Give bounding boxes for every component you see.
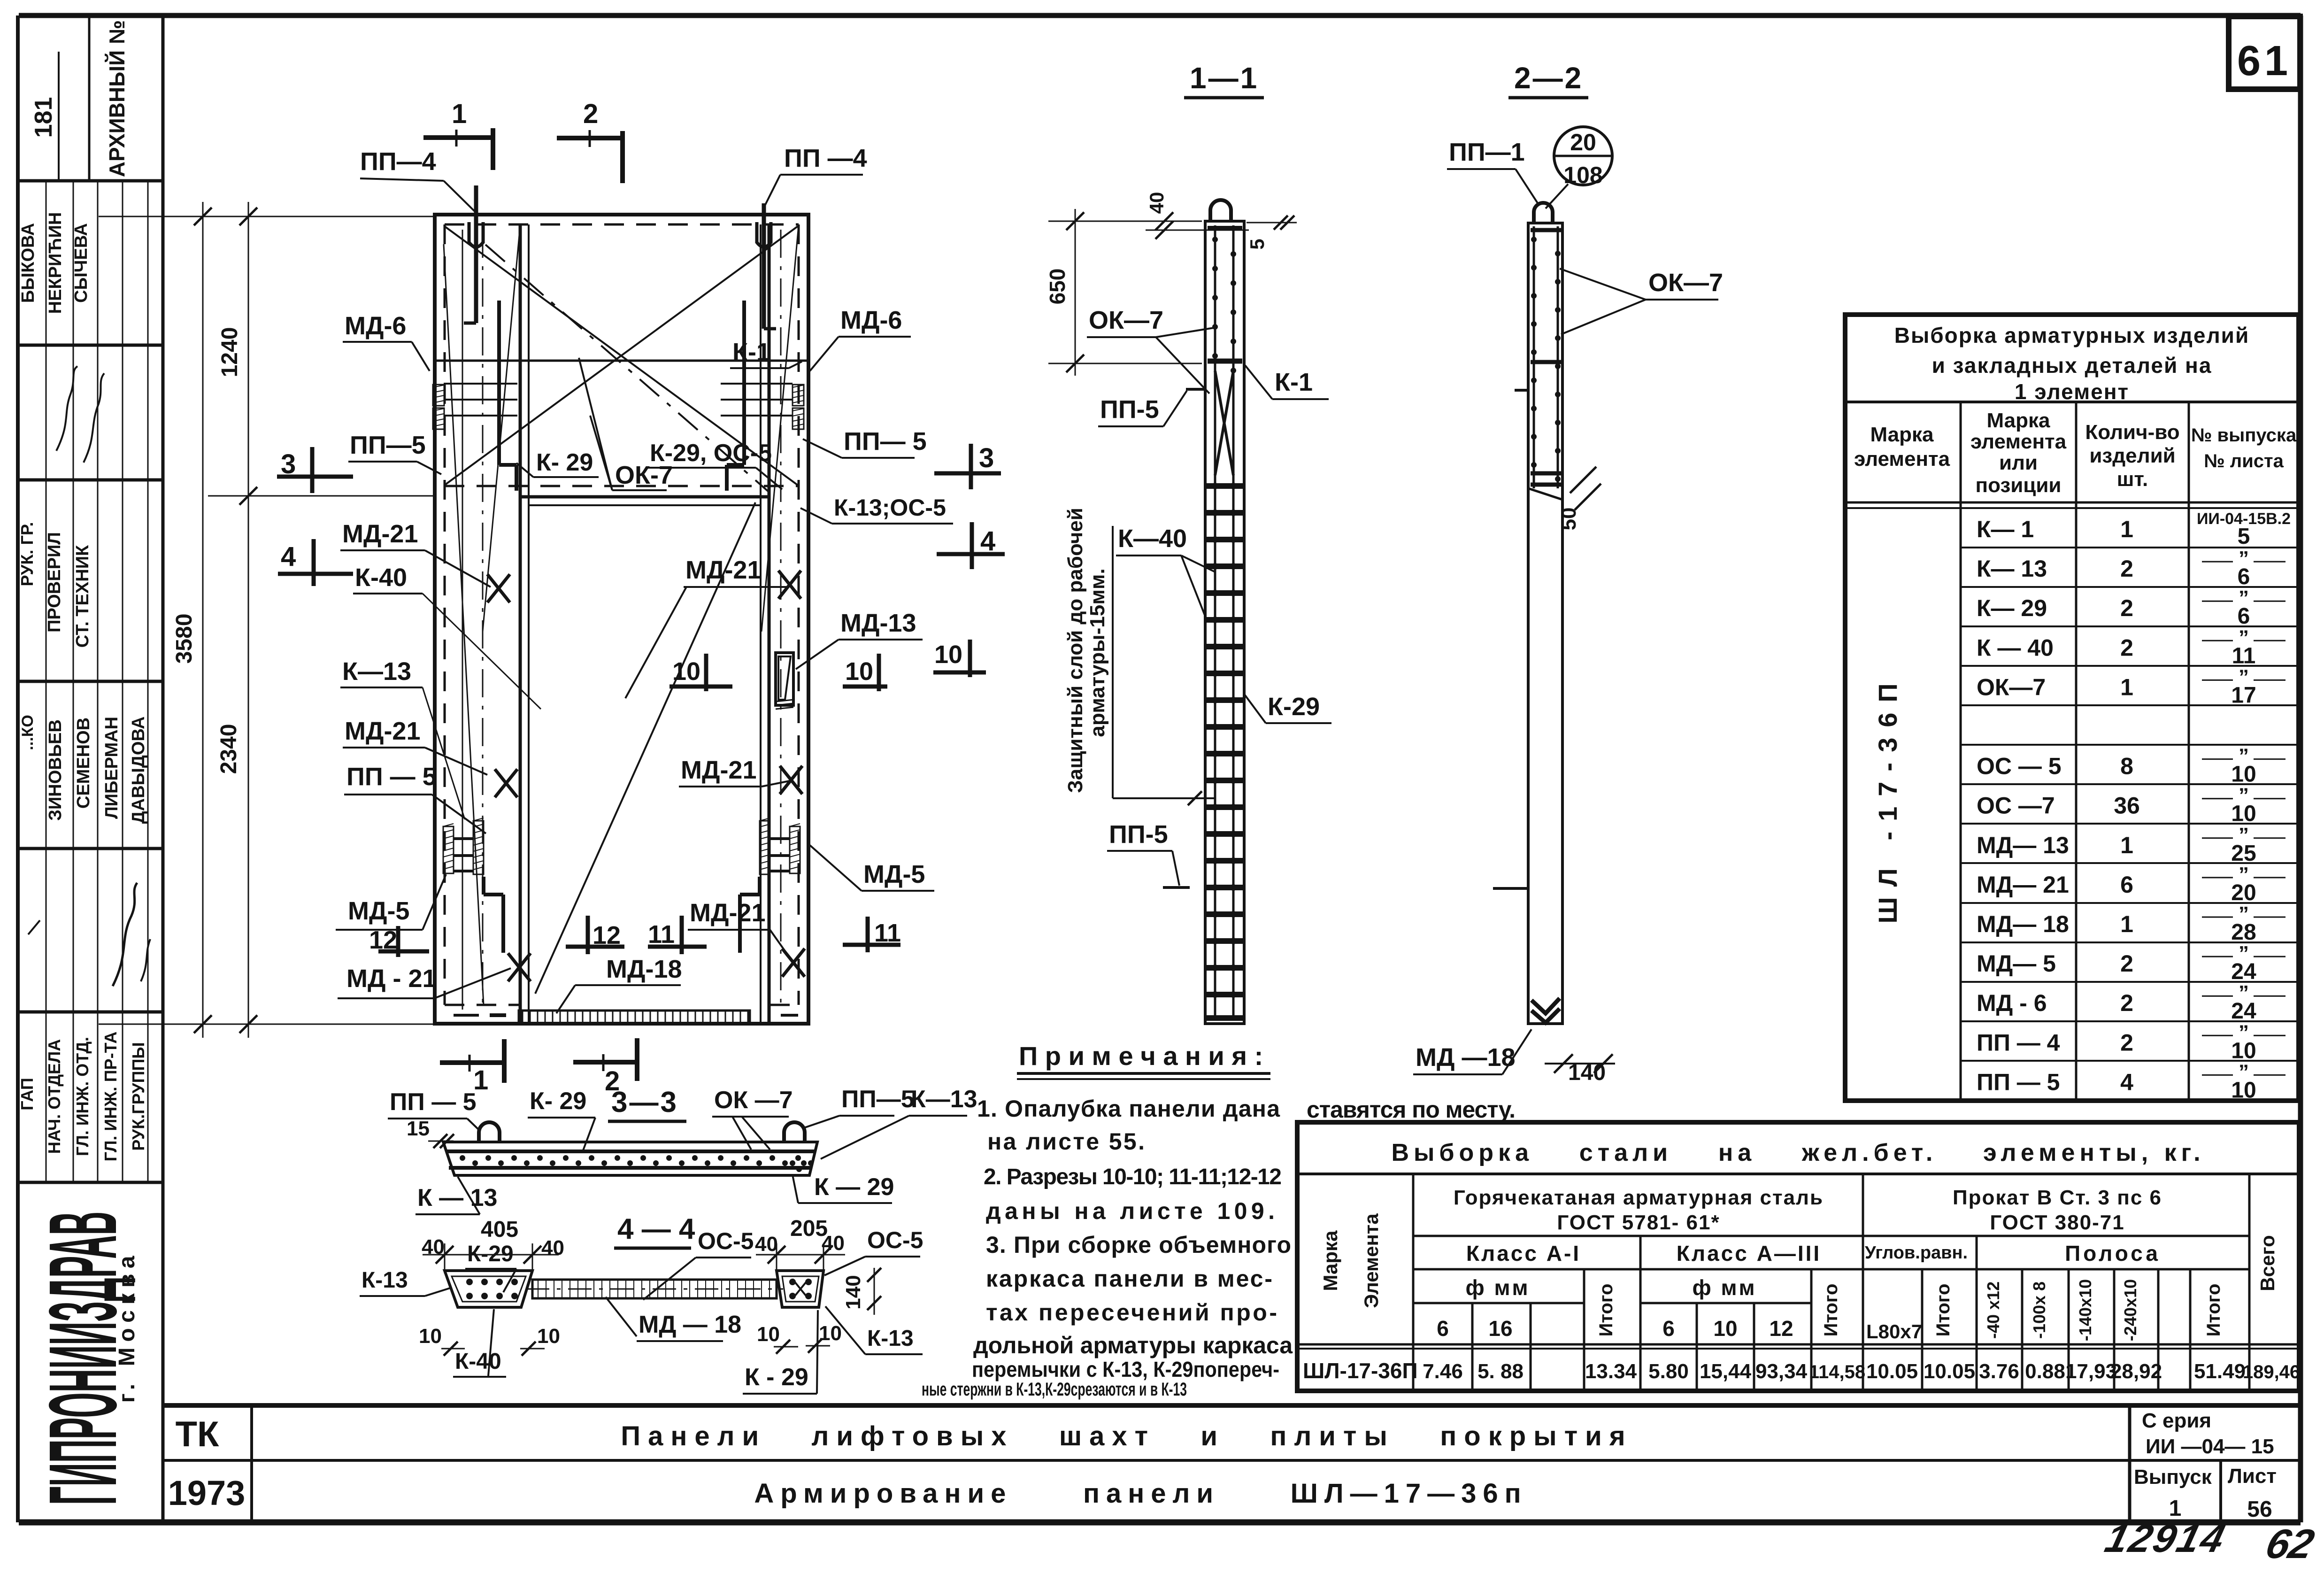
- svg-text:ОК—7: ОК—7: [1977, 674, 2046, 700]
- svg-text:15: 15: [407, 1117, 430, 1140]
- svg-text:1 элемент: 1 элемент: [2015, 379, 2129, 404]
- svg-text:0.88: 0.88: [2025, 1360, 2065, 1383]
- svg-text:МД— 5: МД— 5: [1977, 950, 2056, 977]
- svg-text:МД-21: МД-21: [681, 756, 757, 784]
- svg-text:3. При сборке объемного: 3. При сборке объемного: [986, 1232, 1291, 1258]
- svg-text:4 — 4: 4 — 4: [617, 1213, 695, 1245]
- svg-text:ПП-5: ПП-5: [1100, 395, 1159, 424]
- svg-text:ПП-5: ПП-5: [1109, 820, 1168, 849]
- svg-text:8: 8: [2120, 753, 2133, 779]
- svg-text:СЫЧЕВА: СЫЧЕВА: [71, 223, 91, 303]
- svg-text:МД-6: МД-6: [345, 312, 406, 340]
- svg-text:2340: 2340: [216, 724, 241, 774]
- svg-text:114,58: 114,58: [1809, 1362, 1865, 1382]
- svg-text:К-13: К-13: [362, 1268, 408, 1293]
- svg-text:5: 5: [2238, 524, 2250, 549]
- svg-text:тах пересечений про-: тах пересечений про-: [986, 1299, 1277, 1326]
- svg-text:ГОСТ 380-71: ГОСТ 380-71: [1990, 1211, 2124, 1234]
- svg-text:МД-21: МД-21: [690, 899, 766, 927]
- svg-text:и закладных деталей на: и закладных деталей на: [1932, 353, 2212, 378]
- svg-text:17,93: 17,93: [2065, 1360, 2117, 1383]
- svg-text:МД-13: МД-13: [840, 609, 916, 637]
- svg-text:10: 10: [2231, 762, 2256, 787]
- svg-text:Прокат В Ст. 3 пс 6: Прокат В Ст. 3 пс 6: [1953, 1186, 2162, 1209]
- svg-text:ЛИБЕРМАН: ЛИБЕРМАН: [102, 717, 122, 819]
- svg-text:-40 x12: -40 x12: [1984, 1281, 2003, 1339]
- svg-text:6: 6: [1662, 1316, 1675, 1341]
- svg-text:2: 2: [2120, 1029, 2133, 1056]
- svg-text:К—13: К—13: [342, 657, 411, 686]
- svg-text:СТ. ТЕХНИК: СТ. ТЕХНИК: [73, 545, 92, 648]
- svg-text:ные стержни в К-13,К-29срезают: ные стержни в К-13,К-29срезаются и в К-1…: [922, 1379, 1187, 1400]
- svg-text:5. 88: 5. 88: [1478, 1360, 1524, 1383]
- svg-text:Выборка стали на жел.: Выборка стали на жел.бет. элементы, кг.: [1391, 1139, 2205, 1166]
- svg-text:-240x10: -240x10: [2121, 1279, 2140, 1341]
- svg-text:ф мм: ф мм: [1465, 1275, 1530, 1300]
- svg-text:ф мм: ф мм: [1692, 1275, 1756, 1300]
- svg-text:1—1: 1—1: [1190, 61, 1259, 95]
- svg-text:2: 2: [2120, 556, 2133, 582]
- svg-text:108: 108: [1563, 162, 1602, 188]
- svg-text:дольной арматуры каркаса: дольной арматуры каркаса: [973, 1332, 1293, 1358]
- svg-text:МД-18: МД-18: [606, 955, 682, 983]
- svg-text:Итого: Итого: [1821, 1284, 1841, 1337]
- svg-text:ПП—5: ПП—5: [841, 1086, 915, 1113]
- svg-text:МД — 18: МД — 18: [639, 1311, 741, 1338]
- svg-text:10: 10: [2231, 1038, 2256, 1063]
- svg-text:МД— 18: МД— 18: [1977, 911, 2069, 937]
- svg-text:г. Москва: г. Москва: [115, 1250, 139, 1403]
- svg-text:ЗИНОВЬЕВ: ЗИНОВЬЕВ: [46, 719, 65, 821]
- svg-text:5.80: 5.80: [1648, 1360, 1689, 1383]
- svg-text:6: 6: [2120, 872, 2133, 898]
- svg-text:Итого: Итого: [2203, 1284, 2224, 1337]
- svg-text:Марка: Марка: [1870, 423, 1934, 446]
- svg-text:15,44: 15,44: [1700, 1360, 1752, 1383]
- svg-text:МД— 13: МД— 13: [1977, 832, 2069, 858]
- svg-text:1: 1: [2120, 911, 2133, 937]
- svg-text:L80x7: L80x7: [1866, 1320, 1922, 1343]
- svg-text:25: 25: [2231, 841, 2256, 866]
- svg-text:РУК. ГР.: РУК. ГР.: [17, 522, 37, 586]
- svg-text:ОК—7: ОК—7: [1648, 269, 1723, 297]
- svg-text:ГАП: ГАП: [17, 1078, 37, 1111]
- svg-text:40: 40: [422, 1235, 445, 1258]
- svg-text:ПП — 5: ПП — 5: [1977, 1069, 2060, 1095]
- svg-text:20: 20: [1570, 129, 1596, 155]
- svg-text:1. Опалубка панели дана: 1. Опалубка панели дана: [977, 1096, 1280, 1122]
- svg-text:МД —18: МД —18: [1416, 1043, 1516, 1072]
- svg-text:К — 29: К — 29: [814, 1173, 894, 1201]
- svg-text:11: 11: [2232, 643, 2256, 668]
- svg-text:перемычки с К-13, К-29попереч-: перемычки с К-13, К-29попереч-: [972, 1357, 1279, 1381]
- svg-text:ПП —4: ПП —4: [784, 144, 867, 172]
- svg-text:С ерия: С ерия: [2142, 1409, 2211, 1432]
- svg-text:ОС-5: ОС-5: [867, 1227, 923, 1253]
- svg-text:шт.: шт.: [2117, 468, 2148, 491]
- svg-text:5: 5: [1246, 239, 1268, 249]
- svg-text:П р и м е ч а н и я :: П р и м е ч а н и я :: [1019, 1041, 1263, 1071]
- svg-text:12914: 12914: [2101, 1517, 2231, 1561]
- svg-text:МД-6: МД-6: [840, 306, 902, 334]
- svg-text:3—3: 3—3: [611, 1086, 678, 1119]
- svg-text:Марка: Марка: [1319, 1230, 1341, 1291]
- svg-text:позиции: позиции: [1976, 474, 2062, 497]
- svg-text:4: 4: [980, 526, 995, 556]
- svg-text:-140x10: -140x10: [2076, 1279, 2095, 1341]
- svg-text:Горячекатаная арматурная сталь: Горячекатаная арматурная сталь: [1454, 1186, 1824, 1209]
- svg-text:...КО: ...КО: [19, 715, 37, 750]
- svg-text:10: 10: [934, 640, 962, 669]
- svg-text:1: 1: [2120, 674, 2133, 700]
- svg-text:10.05: 10.05: [1866, 1360, 1918, 1383]
- svg-text:на листе 55.: на листе 55.: [987, 1128, 1145, 1155]
- svg-text:Углов.равн.: Углов.равн.: [1865, 1243, 1968, 1263]
- svg-text:40: 40: [1146, 192, 1168, 214]
- svg-text:2. Разрезы 10-10; 11-11;12-12: 2. Разрезы 10-10; 11-11;12-12: [984, 1165, 1282, 1189]
- svg-text:К— 13: К— 13: [1977, 556, 2047, 582]
- svg-text:140: 140: [1568, 1060, 1606, 1085]
- svg-text:Класс А-I: Класс А-I: [1466, 1241, 1581, 1265]
- svg-text:К- 29: К- 29: [536, 449, 593, 476]
- svg-text:10: 10: [2231, 802, 2256, 826]
- svg-text:ИИ —04— 15: ИИ —04— 15: [2146, 1435, 2274, 1458]
- svg-text:ставятся по месту.: ставятся по месту.: [1307, 1096, 1516, 1123]
- svg-text:К- 29: К- 29: [530, 1088, 586, 1115]
- svg-text:650: 650: [1045, 269, 1070, 305]
- svg-text:13.34: 13.34: [1585, 1360, 1637, 1383]
- svg-text:16: 16: [1488, 1316, 1512, 1341]
- svg-text:6: 6: [1437, 1316, 1449, 1341]
- svg-text:4: 4: [281, 541, 296, 572]
- svg-text:3: 3: [979, 443, 994, 473]
- svg-text:ПП — 4: ПП — 4: [1977, 1029, 2060, 1056]
- svg-text:3580: 3580: [172, 614, 197, 664]
- svg-text:ОС-5: ОС-5: [698, 1228, 754, 1254]
- svg-text:К - 29: К - 29: [745, 1364, 808, 1391]
- svg-text:№ листа: № листа: [2204, 451, 2284, 471]
- svg-text:28,92: 28,92: [2110, 1360, 2162, 1383]
- svg-text:10: 10: [537, 1325, 560, 1348]
- svg-text:40: 40: [541, 1236, 564, 1259]
- svg-text:1973: 1973: [168, 1474, 246, 1512]
- svg-text:11: 11: [648, 920, 675, 949]
- svg-text:140: 140: [842, 1275, 865, 1309]
- svg-text:2: 2: [2120, 634, 2133, 661]
- svg-text:К-40: К-40: [455, 1349, 501, 1374]
- svg-text:К—40: К—40: [1118, 525, 1187, 553]
- svg-text:ПП— 5: ПП— 5: [844, 427, 927, 455]
- svg-text:6: 6: [2238, 564, 2250, 589]
- svg-text:ГЛ. ИНЖ. ПР-ТА: ГЛ. ИНЖ. ПР-ТА: [101, 1032, 120, 1162]
- svg-text:арматуры-15мм.: арматуры-15мм.: [1086, 568, 1109, 737]
- svg-text:АРХИВНЫЙ №: АРХИВНЫЙ №: [105, 20, 129, 177]
- svg-text:К-29: К-29: [467, 1242, 514, 1266]
- svg-text:К — 40: К — 40: [1977, 634, 2054, 661]
- svg-text:или: или: [1999, 451, 2038, 474]
- svg-text:50: 50: [1557, 508, 1580, 531]
- svg-text:1: 1: [452, 99, 467, 129]
- svg-text:1: 1: [2120, 832, 2133, 858]
- svg-text:№ выпуска: № выпуска: [2191, 425, 2297, 446]
- svg-text:ГЛ. ИНЖ. ОТД.: ГЛ. ИНЖ. ОТД.: [73, 1037, 92, 1156]
- svg-text:4: 4: [2120, 1069, 2133, 1095]
- svg-text:Итого: Итого: [1596, 1284, 1616, 1337]
- svg-text:10: 10: [757, 1323, 780, 1346]
- svg-text:12: 12: [1769, 1316, 1793, 1341]
- svg-text:ПП—4: ПП—4: [360, 147, 436, 176]
- svg-text:Элемента: Элемента: [1360, 1213, 1382, 1308]
- svg-text:7.46: 7.46: [1423, 1360, 1463, 1383]
- svg-text:2: 2: [583, 99, 598, 129]
- svg-text:НАЧ. ОТДЕЛА: НАЧ. ОТДЕЛА: [45, 1039, 64, 1154]
- svg-text:К— 29: К— 29: [1977, 595, 2047, 621]
- svg-text:каркаса панели в мес-: каркаса панели в мес-: [986, 1265, 1272, 1292]
- svg-text:БЫКОВА: БЫКОВА: [18, 223, 38, 303]
- svg-text:ОС — 5: ОС — 5: [1977, 753, 2062, 779]
- svg-text:Армирование панели ШЛ—: Армирование панели ШЛ—17—36п: [754, 1478, 1527, 1509]
- svg-text:К—13: К—13: [911, 1086, 977, 1113]
- svg-text:К-40: К-40: [355, 563, 407, 592]
- svg-text:40: 40: [755, 1233, 778, 1256]
- svg-text:10: 10: [819, 1322, 842, 1345]
- svg-text:2: 2: [2120, 595, 2133, 621]
- svg-text:24: 24: [2231, 959, 2256, 984]
- svg-text:К-29: К-29: [1268, 693, 1320, 721]
- svg-text:МД - 6: МД - 6: [1977, 990, 2047, 1016]
- svg-text:К-1: К-1: [732, 338, 770, 366]
- svg-text:СЕМЕНОВ: СЕМЕНОВ: [74, 718, 93, 809]
- svg-text:10: 10: [845, 657, 873, 686]
- svg-text:ГОСТ 5781- 61*: ГОСТ 5781- 61*: [1557, 1211, 1720, 1234]
- svg-text:РУК.ГРУППЫ: РУК.ГРУППЫ: [129, 1042, 148, 1150]
- svg-text:Выборка арматурных изделий: Выборка арматурных изделий: [1894, 323, 2249, 347]
- svg-text:3.76: 3.76: [1979, 1360, 2019, 1383]
- svg-text:К-1: К-1: [1275, 368, 1313, 396]
- svg-text:ШЛ -17-36П: ШЛ -17-36П: [1873, 673, 1902, 923]
- svg-text:-100x 8: -100x 8: [2030, 1281, 2049, 1339]
- svg-text:МД-21: МД-21: [342, 520, 418, 548]
- svg-text:изделий: изделий: [2089, 444, 2175, 467]
- svg-text:36: 36: [2114, 793, 2140, 819]
- svg-text:93,34: 93,34: [1755, 1360, 1808, 1383]
- svg-text:МД— 21: МД— 21: [1977, 872, 2069, 898]
- svg-text:К-13;ОС-5: К-13;ОС-5: [834, 494, 946, 521]
- svg-text:28: 28: [2231, 920, 2256, 945]
- svg-text:2—2: 2—2: [1514, 61, 1583, 95]
- svg-text:ОС —7: ОС —7: [1977, 793, 2055, 819]
- svg-text:ОК —7: ОК —7: [714, 1087, 793, 1114]
- svg-text:ШЛ-17-36П: ШЛ-17-36П: [1303, 1358, 1418, 1383]
- svg-text:Защитный слой до рабочей: Защитный слой до рабочей: [1064, 508, 1087, 793]
- svg-text:10: 10: [1713, 1316, 1737, 1341]
- svg-text:МД-21: МД-21: [685, 556, 762, 584]
- svg-text:ДАВЫДОВА: ДАВЫДОВА: [129, 717, 148, 824]
- svg-text:Класс А—III: Класс А—III: [1677, 1241, 1821, 1265]
- svg-text:Панели лифтовых шахт и: Панели лифтовых шахт и плиты покрытия: [621, 1421, 1632, 1451]
- svg-text:10: 10: [672, 657, 700, 686]
- svg-text:10: 10: [2231, 1078, 2256, 1103]
- svg-text:Итого: Итого: [1933, 1284, 1954, 1337]
- svg-text:НЕКРИЋИН: НЕКРИЋИН: [46, 212, 65, 314]
- svg-text:Выпуск: Выпуск: [2134, 1466, 2212, 1489]
- svg-text:405: 405: [481, 1217, 518, 1242]
- svg-text:К-29, ОС-5: К-29, ОС-5: [650, 440, 772, 467]
- svg-text:1: 1: [2120, 516, 2133, 542]
- svg-text:ПП — 5: ПП — 5: [390, 1088, 477, 1116]
- svg-text:2: 2: [2120, 990, 2133, 1016]
- svg-text:Колич-во: Колич-во: [2085, 421, 2179, 444]
- svg-text:ПП—1: ПП—1: [1449, 138, 1525, 166]
- svg-text:56: 56: [2247, 1497, 2272, 1522]
- svg-text:МД-5: МД-5: [348, 897, 409, 925]
- svg-text:К — 13: К — 13: [417, 1184, 497, 1211]
- svg-text:20: 20: [2231, 880, 2256, 905]
- svg-text:Лист: Лист: [2228, 1465, 2277, 1488]
- svg-text:51.49: 51.49: [2194, 1360, 2246, 1383]
- svg-text:МД-21: МД-21: [345, 717, 421, 745]
- svg-text:К-13: К-13: [867, 1326, 914, 1351]
- svg-text:ОК—7: ОК—7: [1089, 306, 1163, 334]
- svg-text:17: 17: [2231, 683, 2256, 708]
- svg-text:189,46: 189,46: [2243, 1362, 2300, 1382]
- svg-text:МД - 21: МД - 21: [346, 964, 437, 993]
- svg-text:ТК: ТК: [176, 1414, 219, 1454]
- svg-text:ПП—5: ПП—5: [350, 431, 426, 459]
- svg-text:1240: 1240: [217, 327, 242, 378]
- svg-text:10: 10: [419, 1325, 442, 1348]
- svg-text:элемента: элемента: [1970, 430, 2067, 453]
- svg-text:Марка: Марка: [1986, 409, 2050, 432]
- svg-text:ПРОВЕРИЛ: ПРОВЕРИЛ: [45, 532, 64, 633]
- svg-text:Всего: Всего: [2256, 1235, 2278, 1291]
- svg-text:К— 1: К— 1: [1977, 516, 2034, 542]
- svg-text:24: 24: [2231, 999, 2256, 1024]
- svg-text:2: 2: [2120, 950, 2133, 977]
- svg-text:ПП — 5: ПП — 5: [346, 763, 437, 791]
- svg-text:181: 181: [30, 97, 57, 138]
- svg-text:элемента: элемента: [1854, 448, 1950, 471]
- svg-text:10.05: 10.05: [1924, 1360, 1975, 1383]
- svg-text:6: 6: [2238, 604, 2250, 629]
- svg-text:МД-5: МД-5: [863, 860, 925, 888]
- svg-text:61: 61: [2237, 38, 2292, 85]
- svg-text:40: 40: [822, 1232, 845, 1255]
- svg-text:Полоса: Полоса: [2065, 1241, 2161, 1265]
